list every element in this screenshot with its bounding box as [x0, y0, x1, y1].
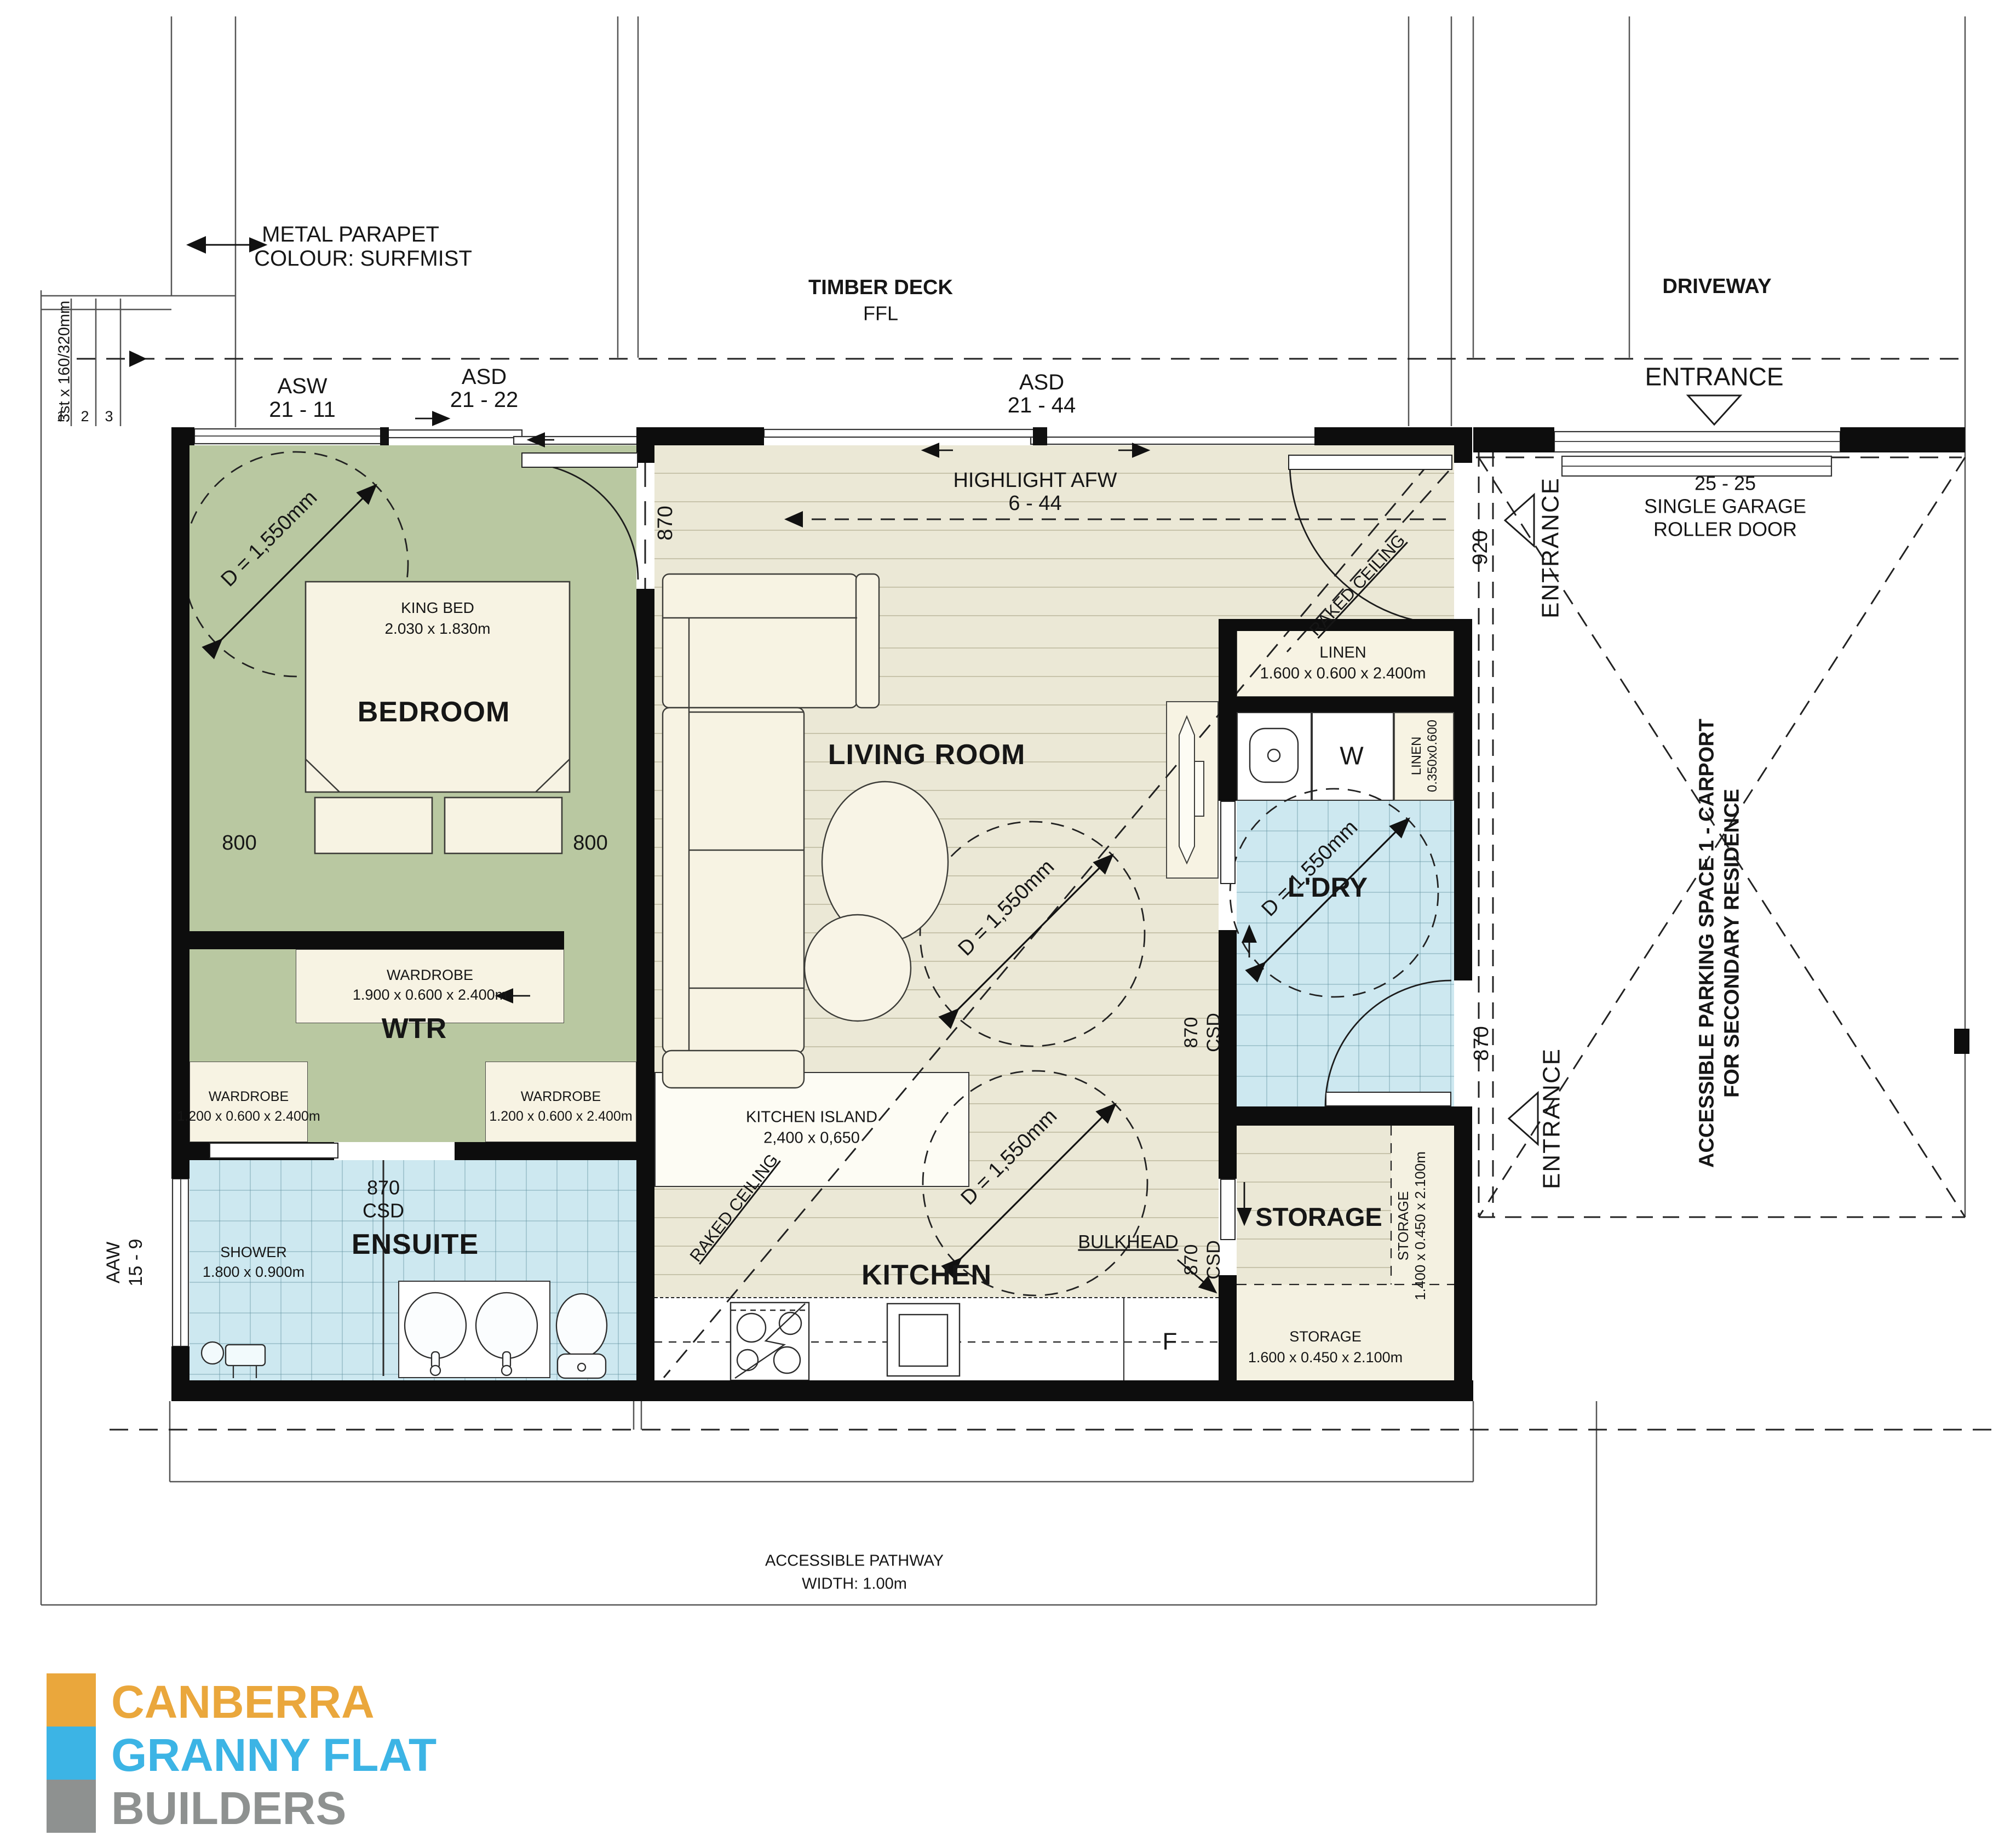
wall-linen-bottom — [1237, 697, 1454, 712]
room-storage: STORAGE — [1255, 1202, 1382, 1232]
carport-note-2: FOR SECONDARY RESIDENCE — [1720, 719, 1745, 1168]
room-kitchen: KITCHEN — [861, 1258, 992, 1292]
garage-door-type-1: SINGLE GARAGE — [1644, 494, 1806, 518]
logo: CANBERRA GRANNY FLAT BUILDERS — [47, 1673, 704, 1838]
room-wtr: WTR — [382, 1012, 446, 1046]
basin-icons — [405, 1293, 537, 1375]
storage-low-size: 1.600 x 0.450 x 2.100m — [1248, 1349, 1403, 1366]
laundry-door-leaf — [1325, 1092, 1451, 1106]
aaw-window-label: AAW 15 - 9 — [102, 1239, 147, 1287]
logo-line-1: CANBERRA — [111, 1676, 375, 1729]
king-bed-size: 2.030 x 1.830m — [384, 620, 490, 638]
wall-top-mid — [636, 427, 764, 445]
king-bed-label: KING BED — [401, 599, 474, 617]
wardrobe-right-label: WARDROBE — [521, 1088, 601, 1105]
entry-door-leaf — [1288, 455, 1452, 470]
wardrobe-main-label: WARDROBE — [387, 966, 473, 984]
wtr-csd-870: 870 — [367, 1175, 400, 1199]
room-living: LIVING ROOM — [828, 738, 1026, 772]
logo-block-gray — [47, 1780, 96, 1833]
step-3: 3 — [105, 408, 113, 425]
k1-870: 870 — [1180, 1013, 1203, 1052]
entrance-top-label: ENTRANCE — [1645, 362, 1783, 392]
wall-ldry-storage — [1219, 1106, 1472, 1126]
wall-linen-top — [1219, 619, 1472, 631]
parapet-arrowhead — [186, 236, 206, 254]
dim-800-left: 800 — [222, 831, 256, 856]
aaw-id: 15 - 9 — [125, 1239, 147, 1287]
logo-block-orange — [47, 1673, 96, 1727]
asw-label: ASW — [277, 373, 327, 399]
carport-note: ACCESSIBLE PARKING SPACE 1 - CARPORT FOR… — [1695, 719, 1744, 1168]
linen-small-name: LINEN — [1409, 720, 1425, 792]
carport-post — [1954, 1029, 1969, 1054]
wall-bed-living-stub — [636, 427, 654, 463]
asd-living-id: 21 - 44 — [1008, 392, 1076, 418]
dim-920-entry: 920 — [1468, 530, 1494, 565]
wall-bed-living — [636, 589, 654, 1381]
shower-icon — [202, 1342, 265, 1378]
wardrobe-left-label: WARDROBE — [209, 1088, 289, 1105]
wall-right-lower — [1454, 1106, 1472, 1401]
wardrobe-left-size: 1.200 x 0.600 x 2.400m — [177, 1108, 320, 1125]
garage-door-type-2: ROLLER DOOR — [1653, 517, 1797, 541]
wall-ensuite-right — [455, 1142, 636, 1160]
driveway-label: DRIVEWAY — [1662, 274, 1771, 300]
wall-right-mid — [1454, 624, 1472, 980]
k2-csd: CSD — [1203, 1240, 1225, 1280]
cooktop-icon — [731, 1303, 809, 1380]
linen-small-label: LINEN 0.350x0.600 — [1409, 720, 1441, 792]
deck-arrowhead — [129, 351, 147, 367]
ffl-label: FFL — [863, 301, 898, 325]
linen-label: LINEN — [1319, 644, 1366, 663]
dim-800-right: 800 — [573, 831, 607, 856]
k1-csd: CSD — [1203, 1013, 1225, 1052]
pathway-note-1: ACCESSIBLE PATHWAY — [765, 1552, 944, 1571]
carport-note-1: ACCESSIBLE PARKING SPACE 1 - CARPORT — [1695, 719, 1720, 1168]
metal-parapet-note-2: COLOUR: SURFMIST — [254, 245, 472, 272]
fridge-label: F — [1163, 1328, 1178, 1357]
wtr-csd-label: CSD — [363, 1198, 404, 1222]
dim-870-bed-door: 870 — [653, 506, 679, 540]
highlight-arrowhead — [784, 511, 803, 527]
bulkhead-label: BULKHEAD — [1078, 1231, 1178, 1254]
storage-tall-size: 1.400 x 0.450 x 2.100m — [1412, 1151, 1429, 1300]
asd-bed-id: 21 - 22 — [450, 387, 519, 413]
wall-bottom — [171, 1380, 1473, 1401]
logo-block-blue — [47, 1727, 96, 1780]
wall-ldry-col-a — [1219, 620, 1237, 801]
floorplan-page: { "site": { "metal_parapet_line1": "META… — [0, 0, 2016, 1841]
garage-door-size: 25 - 25 — [1695, 471, 1756, 495]
wardrobe-right-size: 1.200 x 0.600 x 2.400m — [489, 1108, 632, 1125]
door-swings — [521, 463, 1451, 1106]
wall-ldry-col-b — [1219, 930, 1237, 1179]
asd-bed-label: ASD — [462, 364, 507, 390]
wall-garage-left — [1473, 427, 1554, 452]
room-bedroom: BEDROOM — [358, 695, 510, 729]
kitchen-island-label: KITCHEN ISLAND — [746, 1108, 877, 1127]
asd-living-label: ASD — [1019, 369, 1064, 395]
stair-note: 3st x 160/320mm — [55, 301, 74, 422]
asw-id: 21 - 11 — [269, 397, 336, 423]
dim-870-ldry: 870 — [1469, 1026, 1495, 1060]
wtr-csd-leaf — [209, 1143, 338, 1158]
kitchen-storage-csd-label: 870 CSD — [1180, 1240, 1225, 1280]
kitchen-ldry-csd-label: 870 CSD — [1180, 1013, 1225, 1052]
shower-label: SHOWER — [220, 1243, 287, 1261]
logo-line-2: GRANNY FLAT — [111, 1729, 436, 1782]
oven-icon — [887, 1304, 960, 1376]
kitchen-ldry-csd-leaf — [1220, 801, 1236, 884]
toilet-icon — [556, 1294, 607, 1378]
pathway-note-2: WIDTH: 1.00m — [802, 1575, 907, 1594]
entrance-lower-label: ENTRANCE — [1538, 1048, 1567, 1189]
logo-line-3: BUILDERS — [111, 1782, 346, 1835]
kitchen-storage-csd-leaf — [1220, 1179, 1236, 1240]
window-sashes — [173, 429, 1840, 1346]
laundry-tub-icon — [1250, 729, 1298, 782]
step-2: 2 — [81, 408, 89, 425]
wall-wtr-divider — [189, 931, 564, 949]
shower-size: 1.800 x 0.900m — [203, 1263, 305, 1281]
entrance-upper-label: ENTRANCE — [1537, 477, 1566, 618]
room-ensuite: ENSUITE — [352, 1228, 479, 1261]
linen-size: 1.600 x 0.600 x 2.400m — [1260, 664, 1426, 684]
step-1: 1 — [56, 408, 65, 425]
wall-top-right — [1314, 427, 1454, 445]
washer-label: W — [1340, 741, 1363, 771]
k2-870: 870 — [1180, 1240, 1203, 1280]
bedroom-door-leaf — [521, 452, 638, 468]
metal-parapet-note-1: METAL PARAPET — [262, 221, 439, 248]
kitchen-island-size: 2,400 x 0,650 — [763, 1129, 860, 1148]
storage-tall-label: STORAGE 1.400 x 0.450 x 2.100m — [1395, 1151, 1429, 1300]
storage-low-label: STORAGE — [1289, 1328, 1362, 1345]
wall-left-upper — [171, 427, 189, 1179]
aaw-name: AAW — [102, 1239, 125, 1287]
wall-garage-right — [1840, 427, 1965, 452]
wall-ldry-col-c — [1219, 1275, 1237, 1381]
storage-tall-name: STORAGE — [1395, 1151, 1412, 1300]
wall-right-stub — [1454, 427, 1472, 463]
linen-small-size: 0.350x0.600 — [1425, 720, 1441, 792]
wardrobe-main-size: 1.900 x 0.600 x 2.400m — [353, 986, 507, 1003]
highlight-afw-label: HIGHLIGHT AFW — [953, 468, 1117, 494]
coffee-table — [805, 782, 948, 1021]
timber-deck-label: TIMBER DECK — [808, 276, 953, 301]
highlight-afw-id: 6 - 44 — [1008, 491, 1061, 517]
tv-icon — [1179, 716, 1204, 863]
